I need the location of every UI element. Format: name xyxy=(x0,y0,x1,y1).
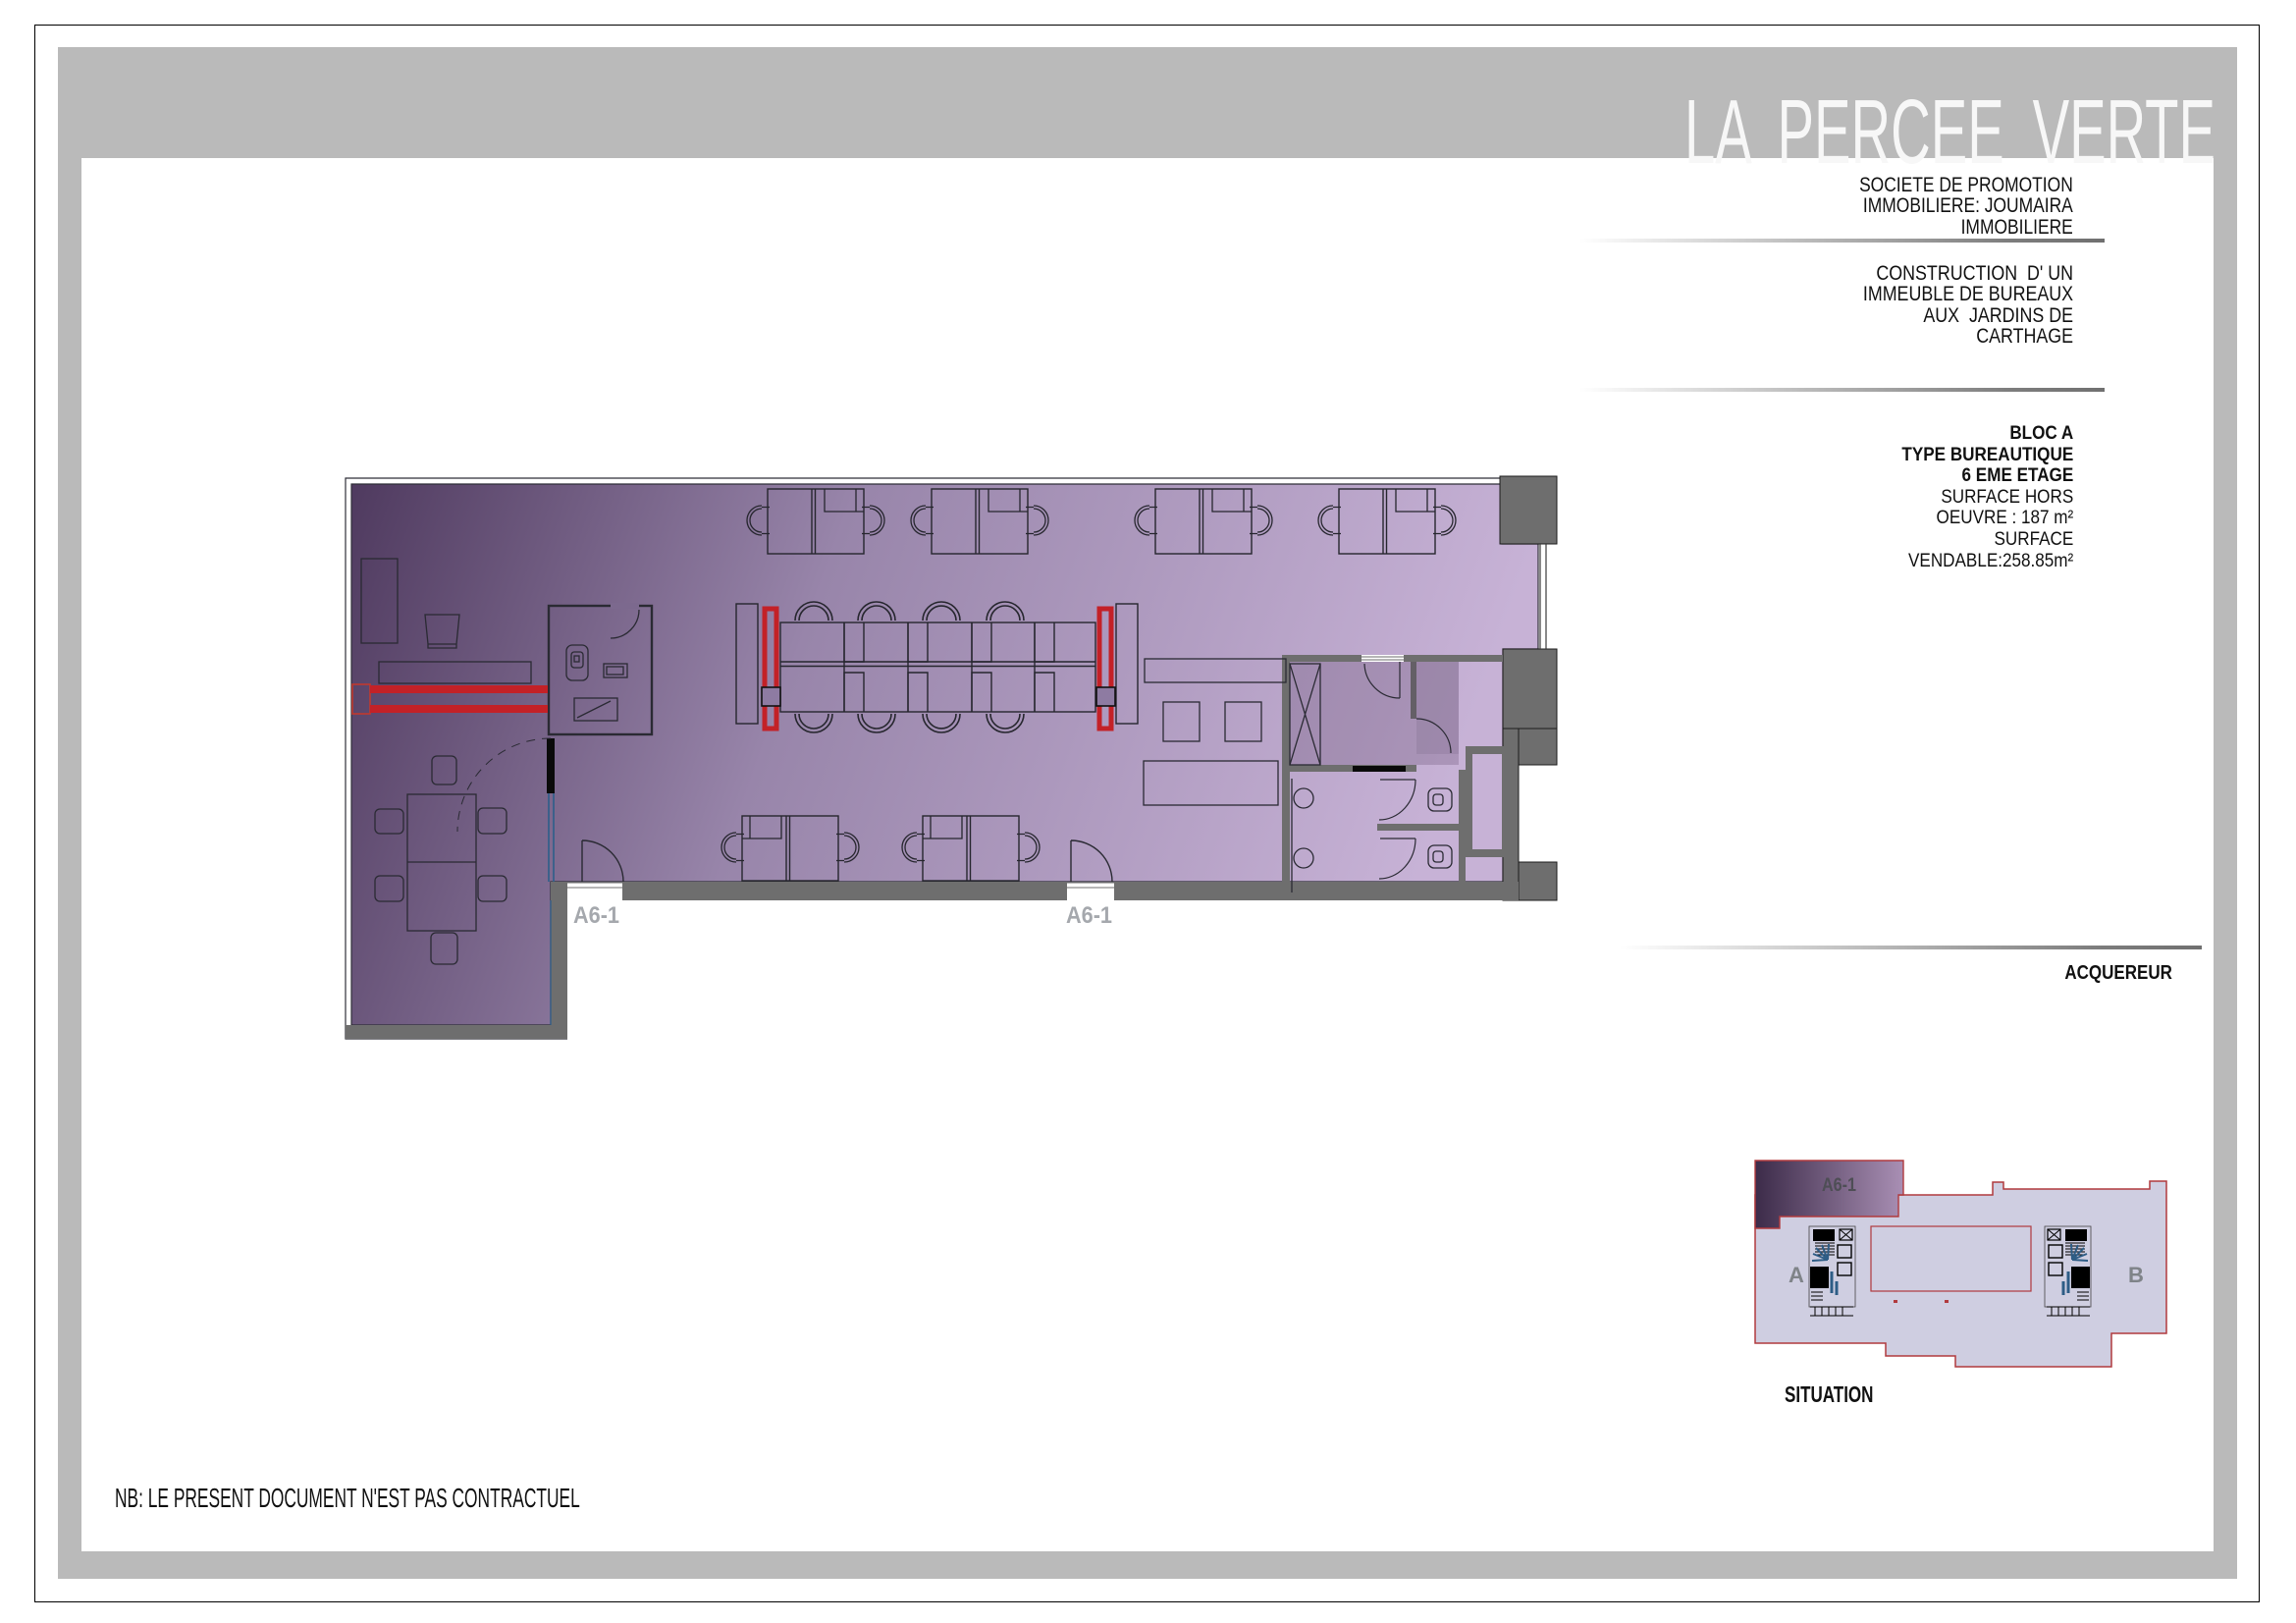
svg-text:LA PERCEE VERTE: LA PERCEE VERTE xyxy=(1684,81,2216,183)
svg-text:A6-1: A6-1 xyxy=(573,902,619,929)
svg-text:B: B xyxy=(2128,1263,2144,1287)
svg-text:A: A xyxy=(1789,1263,1804,1287)
svg-text:A6-1: A6-1 xyxy=(1822,1175,1856,1196)
svg-text:A6-1: A6-1 xyxy=(1066,902,1112,929)
